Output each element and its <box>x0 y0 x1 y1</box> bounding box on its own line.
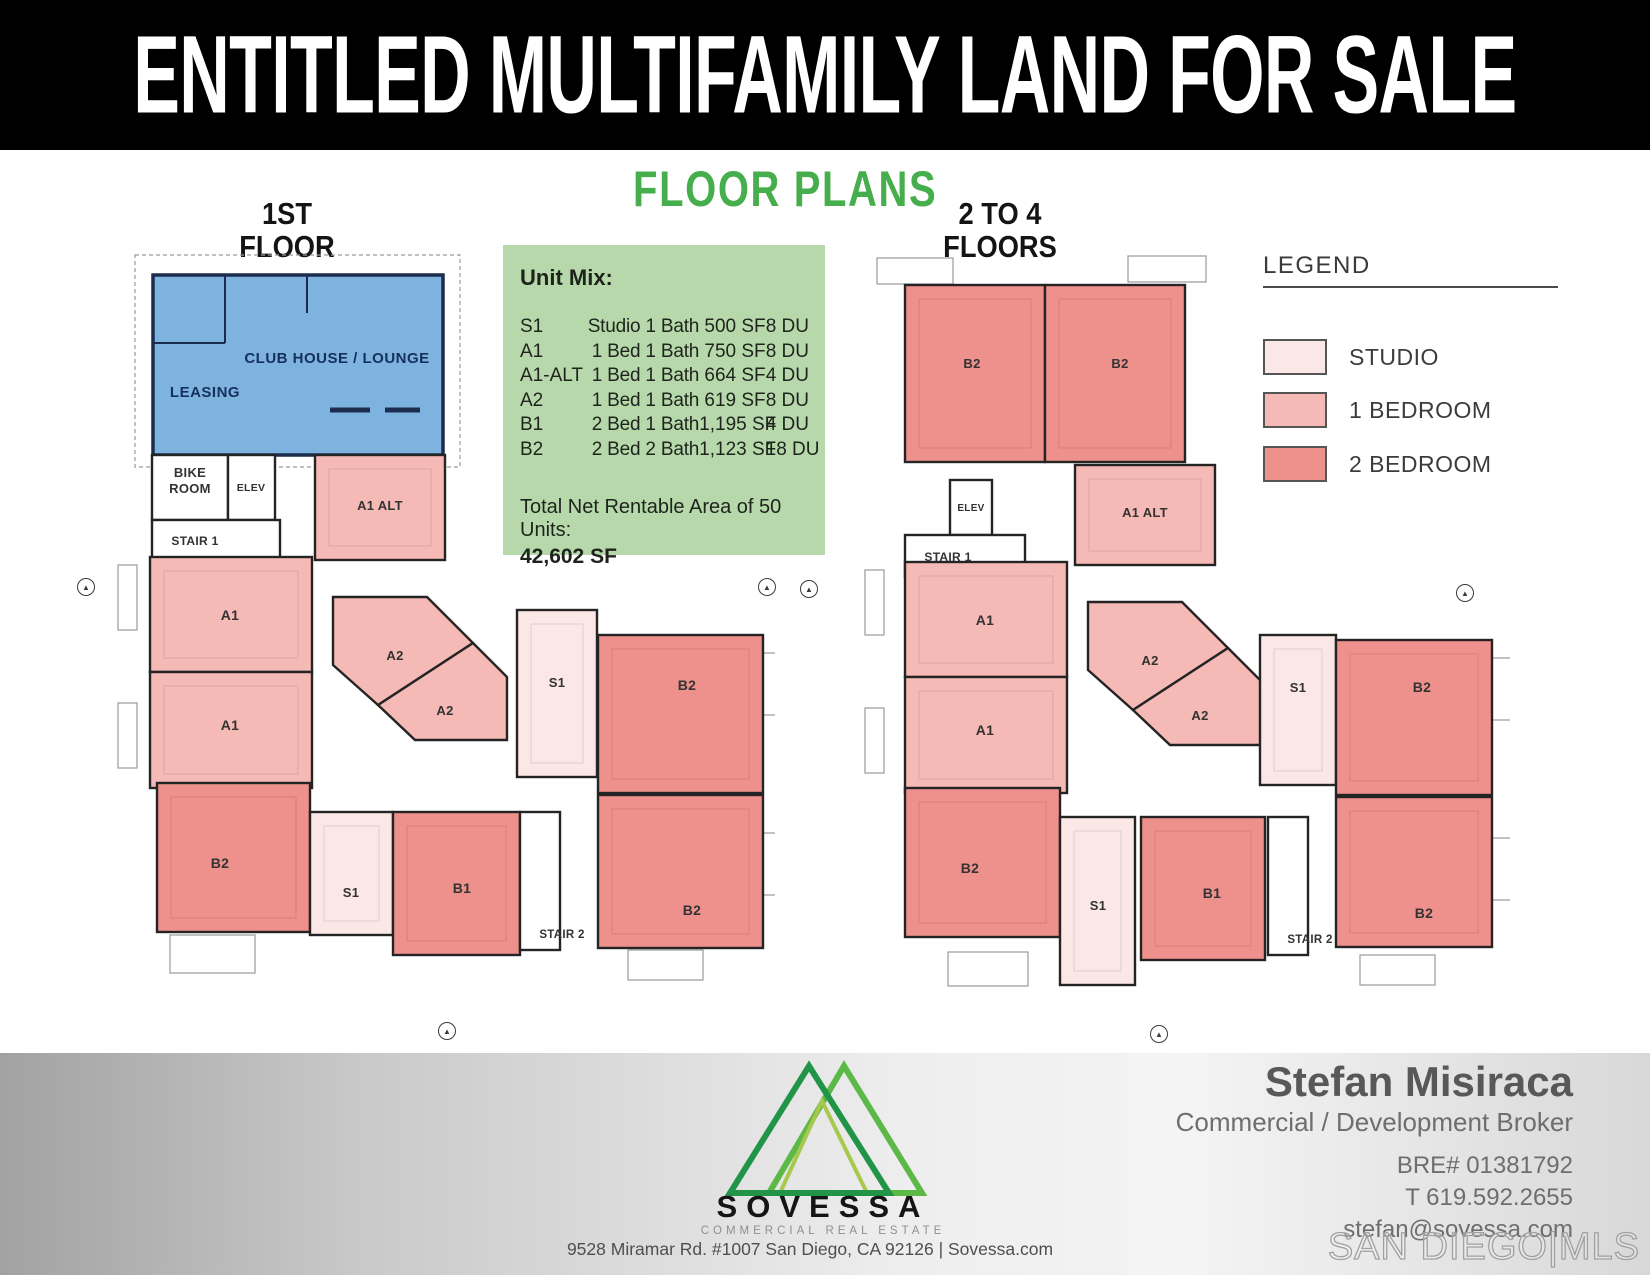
room-label: A2 <box>1191 708 1208 723</box>
room-label: A1 ALT <box>1122 505 1168 520</box>
broker-title: Commercial / Development Broker <box>1176 1107 1573 1138</box>
room-label: A1 <box>221 607 240 623</box>
sovessa-tagline: COMMERCIAL REAL ESTATE <box>663 1225 983 1237</box>
room-label: LEASING <box>170 384 240 401</box>
room-label: A1 ALT <box>357 498 403 513</box>
plan-outline-detail <box>1492 838 1510 900</box>
footer-address: 9528 Miramar Rd. #1007 San Diego, CA 921… <box>500 1239 1120 1260</box>
room-b2 <box>157 783 310 932</box>
unit-mix-total-value: 42,602 SF <box>520 545 809 569</box>
broker-name: Stefan Misiraca <box>1176 1059 1573 1105</box>
room-label: B2 <box>1111 356 1128 371</box>
room-label: S1 <box>549 675 566 690</box>
broker-bre: BRE# 01381792 <box>1176 1152 1573 1180</box>
unit-mix-cell: 4 DU <box>766 413 809 438</box>
room-label: A2 <box>1141 653 1158 668</box>
room-s1 <box>310 812 393 935</box>
plan-outline-detail <box>1360 955 1435 985</box>
unit-mix-cell: A2 <box>520 389 584 414</box>
unit-mix-panel: Unit Mix: S1Studio 1 Bath500 SF8 DUA11 B… <box>503 245 825 555</box>
room-label: A2 <box>386 648 403 663</box>
room-label: S1 <box>343 885 360 900</box>
plan-outline-detail <box>1492 658 1510 720</box>
room-label: B2 <box>683 902 702 918</box>
footer: SOVESSA COMMERCIAL REAL ESTATE 9528 Mira… <box>0 1053 1650 1275</box>
unit-mix-cell: 1 Bed 1 Bath <box>584 364 700 389</box>
unit-mix-cell: 4 DU <box>766 364 809 389</box>
plan-outline-detail <box>763 833 775 895</box>
compass-icon: ▲ <box>77 578 95 596</box>
unit-mix-cell: 500 SF <box>699 315 765 340</box>
legend-swatch <box>1263 339 1327 375</box>
compass-icon: ▲ <box>800 580 818 598</box>
legend-title: LEGEND <box>1263 252 1558 288</box>
legend-swatch <box>1263 392 1327 428</box>
unit-mix-cell: 8 DU <box>766 315 809 340</box>
room-b2 <box>905 788 1060 937</box>
compass-icon: ▲ <box>1456 584 1474 602</box>
legend-item: STUDIO <box>1263 339 1439 375</box>
unit-mix-table: S1Studio 1 Bath500 SF8 DUA11 Bed 1 Bath7… <box>520 315 809 462</box>
unit-mix-row: A21 Bed 1 Bath619 SF8 DU <box>520 389 809 414</box>
sandiego-mls-logo: SAN DIEGO|MLS <box>1328 1226 1640 1269</box>
compass-icon: ▲ <box>438 1022 456 1040</box>
plan-outline-detail <box>1128 256 1206 282</box>
room-label: B1 <box>1203 885 1222 901</box>
plan-outline-detail <box>877 258 953 284</box>
unit-mix-heading: Unit Mix: <box>520 265 809 291</box>
unit-mix-row: A1-ALT1 Bed 1 Bath664 SF4 DU <box>520 364 809 389</box>
room-label: STAIR 1 <box>171 534 218 548</box>
broker-phone: T 619.592.2655 <box>1176 1184 1573 1212</box>
legend-item: 1 BEDROOM <box>1263 392 1492 428</box>
unit-mix-cell: 8 DU <box>766 389 809 414</box>
room-b2 <box>1045 285 1185 462</box>
legend-panel: LEGEND STUDIO1 BEDROOM2 BEDROOM <box>1263 252 1558 288</box>
plan-outline-detail <box>118 565 137 630</box>
room-label: ELEV <box>237 482 266 494</box>
plan-title-line: 1ST <box>190 197 384 230</box>
legend-label: STUDIO <box>1349 344 1439 371</box>
unit-mix-cell: A1 <box>520 340 584 365</box>
room-label: A1 <box>221 717 240 733</box>
room-b2 <box>598 635 763 793</box>
unit-mix-cell: 2 Bed 1 Bath <box>584 413 700 438</box>
unit-mix-cell: 1,195 SF <box>699 413 765 438</box>
unit-mix-cell: B1 <box>520 413 584 438</box>
unit-mix-cell: B2 <box>520 438 584 463</box>
room-label: CLUB HOUSE / LOUNGE <box>244 350 429 367</box>
compass-icon: ▲ <box>758 578 776 596</box>
unit-mix-row: B12 Bed 1 Bath1,195 SF4 DU <box>520 413 809 438</box>
legend-label: 2 BEDROOM <box>1349 451 1492 478</box>
unit-mix-cell: 2 Bed 2 Bath <box>584 438 700 463</box>
room-label: B2 <box>961 860 980 876</box>
flyer-page: ENTITLED MULTIFAMILY LAND FOR SALE FLOOR… <box>0 0 1650 1275</box>
room-s1 <box>1260 635 1336 785</box>
plan-outline-detail <box>170 935 255 973</box>
room-label: S1 <box>1090 898 1107 913</box>
page-title: ENTITLED MULTIFAMILY LAND FOR SALE <box>133 12 1516 138</box>
room-b2 <box>905 285 1045 462</box>
legend-swatch <box>1263 446 1327 482</box>
plan-outline-detail <box>763 653 775 715</box>
room-label: B2 <box>211 855 230 871</box>
unit-mix-cell: Studio 1 Bath <box>584 315 700 340</box>
room-label: A1 <box>976 612 995 628</box>
room-label: S1 <box>1290 680 1307 695</box>
compass-icon: ▲ <box>1150 1025 1168 1043</box>
room-label: A1 <box>976 722 995 738</box>
unit-mix-cell: 619 SF <box>699 389 765 414</box>
unit-mix-cell: 18 DU <box>766 438 809 463</box>
plan-outline-detail <box>628 950 703 980</box>
legend-label: 1 BEDROOM <box>1349 397 1492 424</box>
plan-outline-detail <box>948 952 1028 986</box>
room-s1 <box>517 610 597 777</box>
unit-mix-cell: A1-ALT <box>520 364 584 389</box>
room-label: A2 <box>436 703 453 718</box>
legend-item: 2 BEDROOM <box>1263 446 1492 482</box>
room-label: BIKEROOM <box>169 465 211 496</box>
room-label: STAIR 2 <box>1287 934 1332 946</box>
plan-outline-detail <box>865 570 884 635</box>
room-label: B2 <box>1415 905 1434 921</box>
title-banner: ENTITLED MULTIFAMILY LAND FOR SALE <box>0 0 1650 150</box>
room-label: STAIR 1 <box>924 550 971 564</box>
unit-mix-cell: 8 DU <box>766 340 809 365</box>
unit-mix-total-label: Total Net Rentable Area of 50 Units: <box>520 496 809 542</box>
plan-outline-detail <box>865 708 884 773</box>
unit-mix-cell: 750 SF <box>699 340 765 365</box>
unit-mix-cell: 1,123 SF <box>699 438 765 463</box>
room-label: ELEV <box>957 503 984 514</box>
unit-mix-row: B22 Bed 2 Bath1,123 SF18 DU <box>520 438 809 463</box>
room-label: B2 <box>678 677 697 693</box>
sovessa-logo <box>722 1059 932 1199</box>
sovessa-wordmark: SOVESSA <box>663 1189 983 1225</box>
room-b2 <box>1336 797 1492 947</box>
plan-title-line: 2 TO 4 <box>903 197 1097 230</box>
room-b2 <box>598 795 763 948</box>
unit-mix-row: A11 Bed 1 Bath750 SF8 DU <box>520 340 809 365</box>
unit-mix-cell: 664 SF <box>699 364 765 389</box>
room-label: B2 <box>1413 679 1432 695</box>
unit-mix-cell: S1 <box>520 315 584 340</box>
room-label: B2 <box>963 356 980 371</box>
broker-block: Stefan Misiraca Commercial / Development… <box>1176 1059 1573 1244</box>
room-label: B1 <box>453 880 472 896</box>
unit-mix-cell: 1 Bed 1 Bath <box>584 340 700 365</box>
plan-outline-detail <box>118 703 137 768</box>
room-label: STAIR 2 <box>539 929 584 941</box>
unit-mix-row: S1Studio 1 Bath500 SF8 DU <box>520 315 809 340</box>
unit-mix-cell: 1 Bed 1 Bath <box>584 389 700 414</box>
room-b2 <box>1336 640 1492 795</box>
